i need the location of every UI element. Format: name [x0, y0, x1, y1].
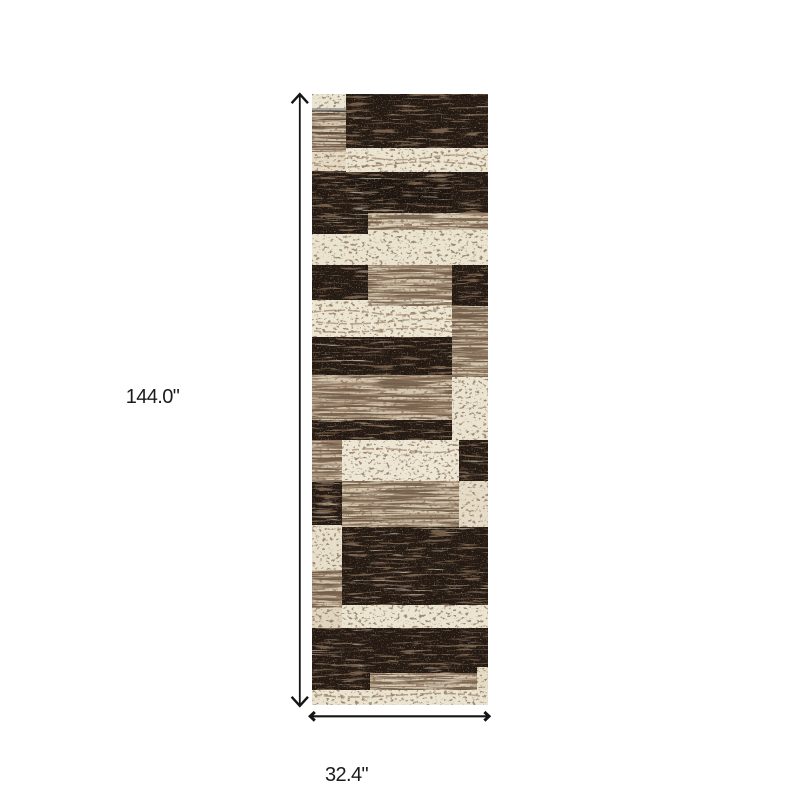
svg-text:144.0": 144.0"	[126, 386, 180, 408]
svg-text:32.4": 32.4"	[325, 764, 369, 786]
